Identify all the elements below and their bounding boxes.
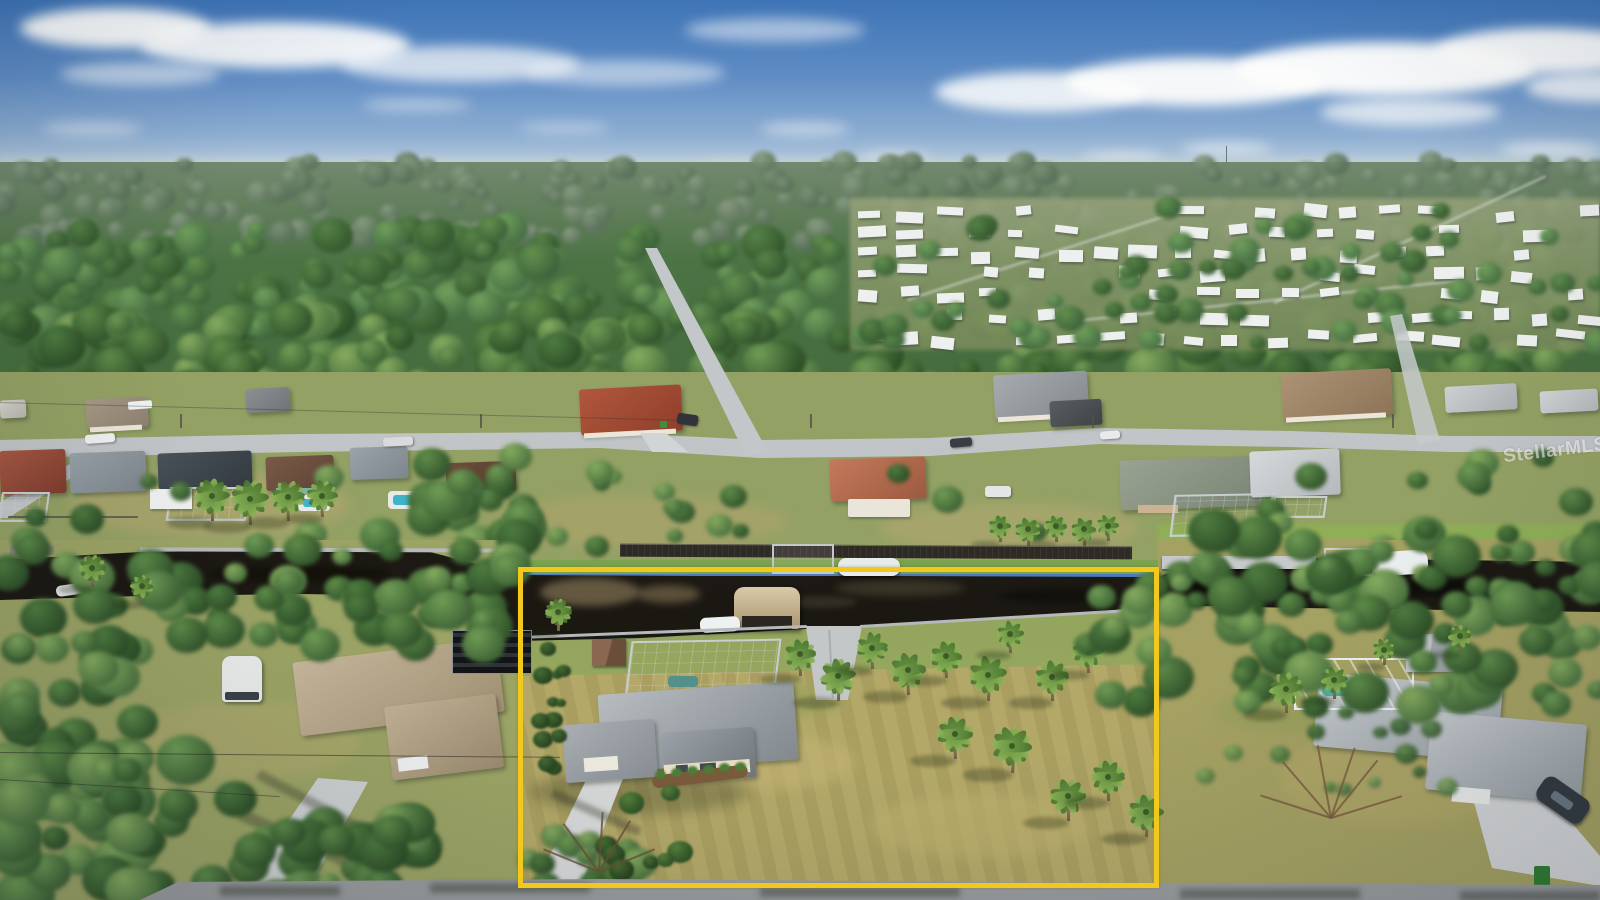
road-shadow bbox=[1460, 891, 1600, 900]
road-shadow bbox=[760, 887, 960, 897]
aerial-photo: StellarMLS bbox=[0, 0, 1600, 900]
road-shadow bbox=[1180, 889, 1360, 899]
road-shadow bbox=[220, 886, 340, 896]
property-boundary-outline bbox=[518, 567, 1159, 888]
